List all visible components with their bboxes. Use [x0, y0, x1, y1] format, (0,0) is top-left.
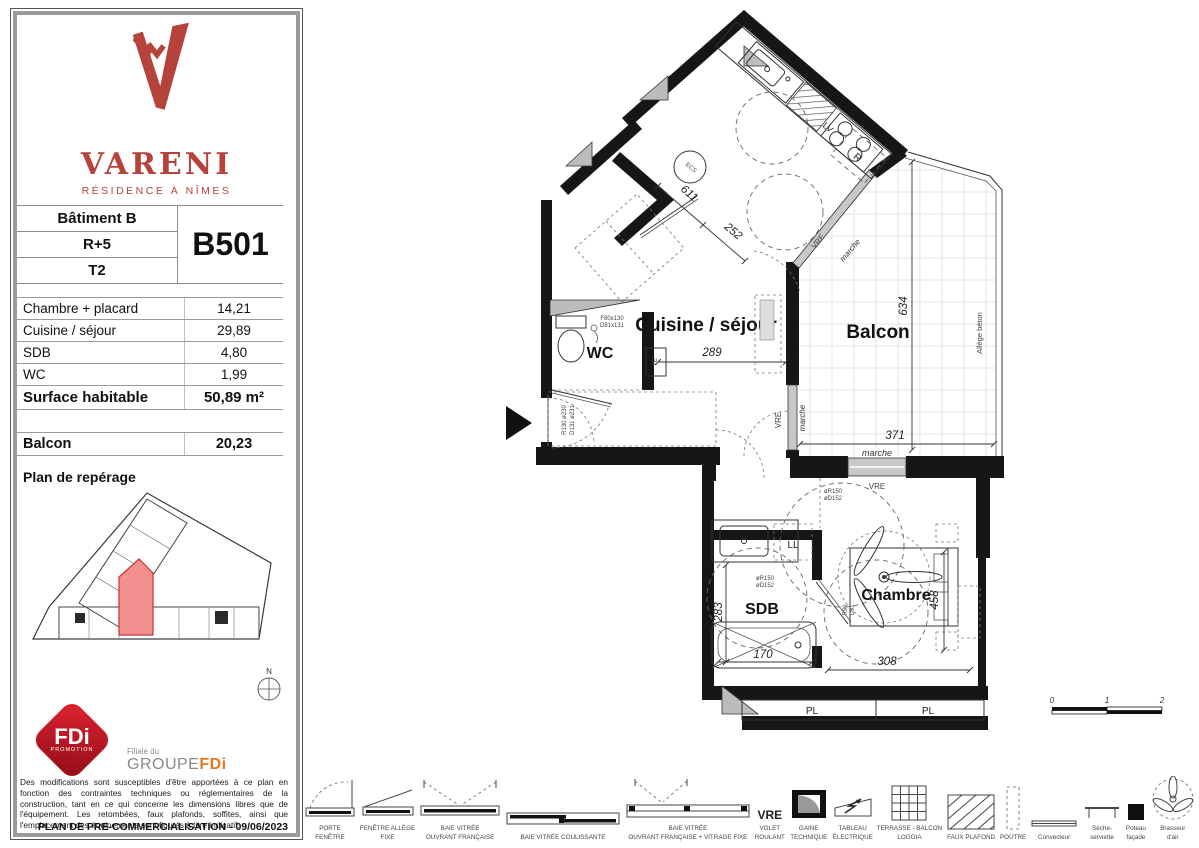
fdi-logo-subtext: PROMOTION	[51, 747, 94, 753]
brand-subtitle: RÉSIDENCE À NÎMES	[11, 185, 302, 197]
legend-item: TABLEAU ÉLECTRIQUE	[833, 786, 873, 842]
wc-spec2: D81x131	[600, 323, 625, 329]
allege-beton: Allège béton	[975, 312, 984, 354]
balcony-value: 20,23	[184, 433, 283, 455]
bathroom: LL øR150 øD152 SDB 283 170	[707, 520, 851, 668]
info-panel: VARENI RÉSIDENCE À NÎMES Bâtiment B R+5 …	[10, 8, 303, 840]
legend-label: FENÊTRE ALLÈGE FIXE	[360, 825, 415, 842]
legend-item: Sèche- serviette	[1082, 802, 1122, 842]
baie-vitree-coulissante-icon	[505, 787, 621, 831]
terrasse-balcon-icon	[890, 784, 928, 822]
table-row: SDB 4,80	[17, 342, 283, 364]
fenetre-allege-fixe-icon	[361, 778, 415, 822]
room-label-chambre: Chambre	[861, 587, 930, 604]
entrance-arrow	[506, 406, 532, 440]
vre-symbol: VRE	[757, 808, 782, 822]
document-footer: PLAN DE PRE-COMMERCIALISATION - 09/06/20…	[20, 821, 288, 833]
legend-item: FENÊTRE ALLÈGE FIXE	[360, 778, 415, 842]
room-label-balcony: Balcon	[846, 322, 909, 343]
legend-label: POUTRE	[1000, 834, 1026, 843]
poteau-facade-icon	[1126, 802, 1146, 822]
dim-170: 170	[753, 649, 773, 661]
area-label: Cuisine / séjour	[17, 320, 184, 341]
balcony-label: Balcon	[17, 433, 184, 455]
entry-door: R130 ø230 D131 ø231	[506, 392, 716, 446]
total-value: 50,89 m²	[184, 386, 283, 409]
area-label: Chambre + placard	[17, 298, 184, 319]
legend-item: FAUX PLAFOND	[946, 793, 996, 843]
entry-access-d: D131 ø231	[570, 404, 576, 434]
location-plan-title: Plan de repérage	[23, 469, 136, 485]
baie-vitree-ouvrant-francaise-icon	[419, 778, 501, 822]
filiale-label: Filiale du	[127, 747, 227, 756]
bath-access-d: øD152	[756, 583, 775, 589]
bed-access-r: øR150	[824, 489, 843, 495]
tableau-electrique-icon	[833, 786, 873, 822]
unit-building: Bâtiment B	[17, 206, 177, 231]
ll-label: LL	[787, 540, 799, 551]
legend-label: TERRASSE - BALCON LOGGIA	[877, 825, 942, 842]
legend-label: BAIE VITRÉE OUVRANT FRANÇAISE + VITRAGE …	[628, 825, 747, 842]
legend-label: Sèche- serviette	[1090, 825, 1114, 842]
scale-2: 2	[1159, 696, 1165, 705]
entry-dims: 611 252	[655, 183, 748, 264]
dim-289: 289	[701, 347, 722, 359]
legend-label: VOLET ROULANT	[755, 825, 785, 842]
table-row: Chambre + placard 14,21	[17, 297, 283, 320]
legend-item: TERRASSE - BALCON LOGGIA	[877, 784, 942, 842]
vareni-logo-icon	[102, 19, 212, 141]
dim-611: 611	[678, 183, 700, 204]
legend-item: VRE VOLET ROULANT	[755, 808, 785, 842]
spacer-row	[17, 410, 283, 432]
pl-right-label: PL	[922, 706, 935, 717]
marche-diag: marche	[838, 237, 862, 264]
total-label: Surface habitable	[17, 386, 184, 409]
legend-label: TABLEAU ÉLECTRIQUE	[833, 825, 873, 842]
legend-item: POUTRE	[1000, 785, 1026, 843]
unit-table: Bâtiment B R+5 T2 B501	[17, 205, 283, 284]
location-plan-map: N	[19, 489, 285, 715]
window-sills	[550, 46, 768, 714]
legend-label: FAUX PLAFOND	[947, 834, 995, 843]
unit-type: T2	[17, 257, 177, 283]
legend-label: Convecteur	[1038, 834, 1070, 843]
vre-bottom: VRE	[869, 482, 885, 491]
scale-0: 0	[1050, 696, 1055, 705]
north-label: N	[266, 667, 272, 676]
bath-access-r: øR150	[756, 576, 775, 582]
dim-252: 252	[721, 220, 745, 243]
bed-access-d: øD152	[824, 496, 843, 502]
water-heater: ECS	[674, 151, 706, 183]
vre-left: VRE	[774, 412, 783, 428]
table-row: Cuisine / séjour 29,89	[17, 320, 283, 342]
bed-access-r2: R90	[843, 604, 849, 616]
marche-left: marche	[798, 404, 807, 431]
convecteur-icon	[1030, 817, 1078, 831]
kitchen-counter: LV R	[711, 22, 892, 185]
legend-label: Poteau façade	[1126, 825, 1146, 842]
brand-logo	[11, 19, 302, 146]
area-label: WC	[17, 364, 184, 385]
marche-bottom: marche	[862, 448, 892, 458]
table-row: WC 1,99	[17, 364, 283, 386]
surface-total-row: Surface habitable 50,89 m²	[17, 386, 283, 410]
entry-closet	[575, 194, 684, 302]
legend-item: Brasseur d'air	[1150, 776, 1196, 842]
groupe-label: GROUPE	[127, 756, 199, 773]
scale-1: 1	[1105, 696, 1109, 705]
poutre-icon	[1005, 785, 1021, 831]
legend-item: BAIE VITRÉE COULISSANTE	[505, 787, 621, 843]
porte-fenetre-icon	[304, 778, 356, 822]
ecs-label: ECS	[684, 162, 697, 175]
dim-371: 371	[885, 430, 904, 442]
faux-plafond-icon	[946, 793, 996, 831]
balcony-row: Balcon 20,23	[17, 432, 283, 456]
wc-spec1: F80x130	[600, 316, 624, 322]
legend-label: BAIE VITRÉE COULISSANTE	[520, 834, 605, 843]
fdi-logo-text: FDi	[54, 727, 89, 747]
legend-item: BAIE VITRÉE OUVRANT FRANÇAISE + VITRAGE …	[625, 778, 751, 842]
room-label-living: Cuisine / séjour	[635, 315, 777, 336]
dim-634: 634	[898, 296, 910, 315]
legend-item: Convecteur	[1030, 817, 1078, 843]
pl-left-label: PL	[806, 706, 819, 717]
unit-floor: R+5	[17, 231, 177, 257]
legend-label: Brasseur d'air	[1160, 825, 1185, 842]
bed-access-d2: D91	[850, 604, 856, 616]
areas-table: Chambre + placard 14,21 Cuisine / séjour…	[17, 297, 283, 456]
legend-item: PORTE FENÊTRE	[304, 778, 356, 842]
area-value: 4,80	[184, 342, 283, 363]
room-label-sdb: SDB	[745, 601, 779, 618]
gaine-technique-icon	[789, 786, 829, 822]
groupe-fdi-label: FDi	[199, 756, 226, 773]
dim-308: 308	[877, 656, 897, 668]
room-label-wc: WC	[587, 345, 614, 362]
unit-code: B501	[178, 206, 283, 283]
dim-458: 458	[929, 590, 941, 610]
turning-circle-living	[747, 174, 823, 250]
baie-vitree-of-vitrage-fixe-icon	[625, 778, 751, 822]
brand-name: VARENI	[11, 147, 302, 182]
entry-access-r: R130 ø230	[562, 404, 568, 434]
groupe-fdi: Filiale du GROUPEFDi	[127, 747, 227, 774]
dim-283: 283	[713, 602, 725, 623]
legend-label: BAIE VITRÉE OUVRANT FRANÇAISE	[426, 825, 494, 842]
legend-label: PORTE FENÊTRE	[315, 825, 344, 842]
legend-item: Poteau façade	[1126, 802, 1146, 842]
fdi-logo: FDi PROMOTION	[31, 699, 113, 781]
plan-sheet: LV R ECS R130 ø230 D131 ø231	[0, 0, 1199, 848]
legend: PORTE FENÊTRE FENÊTRE ALLÈGE FIXE BAIE V…	[302, 758, 1198, 842]
highlighted-unit	[119, 559, 153, 635]
legend-label: GAINE TECHNIQUE	[790, 825, 827, 842]
seche-serviette-icon	[1082, 802, 1122, 822]
area-value: 14,21	[184, 298, 283, 319]
living-room: Cuisine / séjour 289	[635, 251, 800, 478]
area-label: SDB	[17, 342, 184, 363]
scale-bar: 0 1 2	[1050, 696, 1165, 714]
area-value: 29,89	[184, 320, 283, 341]
brasseur-air-icon	[1150, 776, 1196, 822]
north-compass-icon: N	[258, 667, 280, 700]
legend-item: BAIE VITRÉE OUVRANT FRANÇAISE	[419, 778, 501, 842]
area-value: 1,99	[184, 364, 283, 385]
legend-item: GAINE TECHNIQUE	[789, 786, 829, 842]
